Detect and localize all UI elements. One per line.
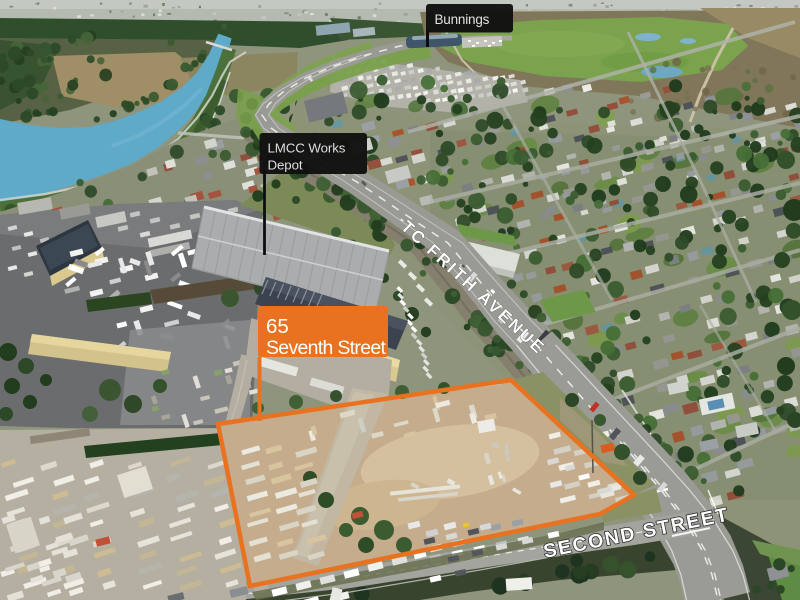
svg-text:Bunnings: Bunnings [435, 12, 490, 27]
svg-text:65: 65 [266, 315, 289, 338]
svg-text:LMCC Works: LMCC Works [268, 141, 346, 156]
svg-text:Seventh Street: Seventh Street [266, 337, 386, 359]
svg-text:Depot: Depot [268, 158, 303, 173]
